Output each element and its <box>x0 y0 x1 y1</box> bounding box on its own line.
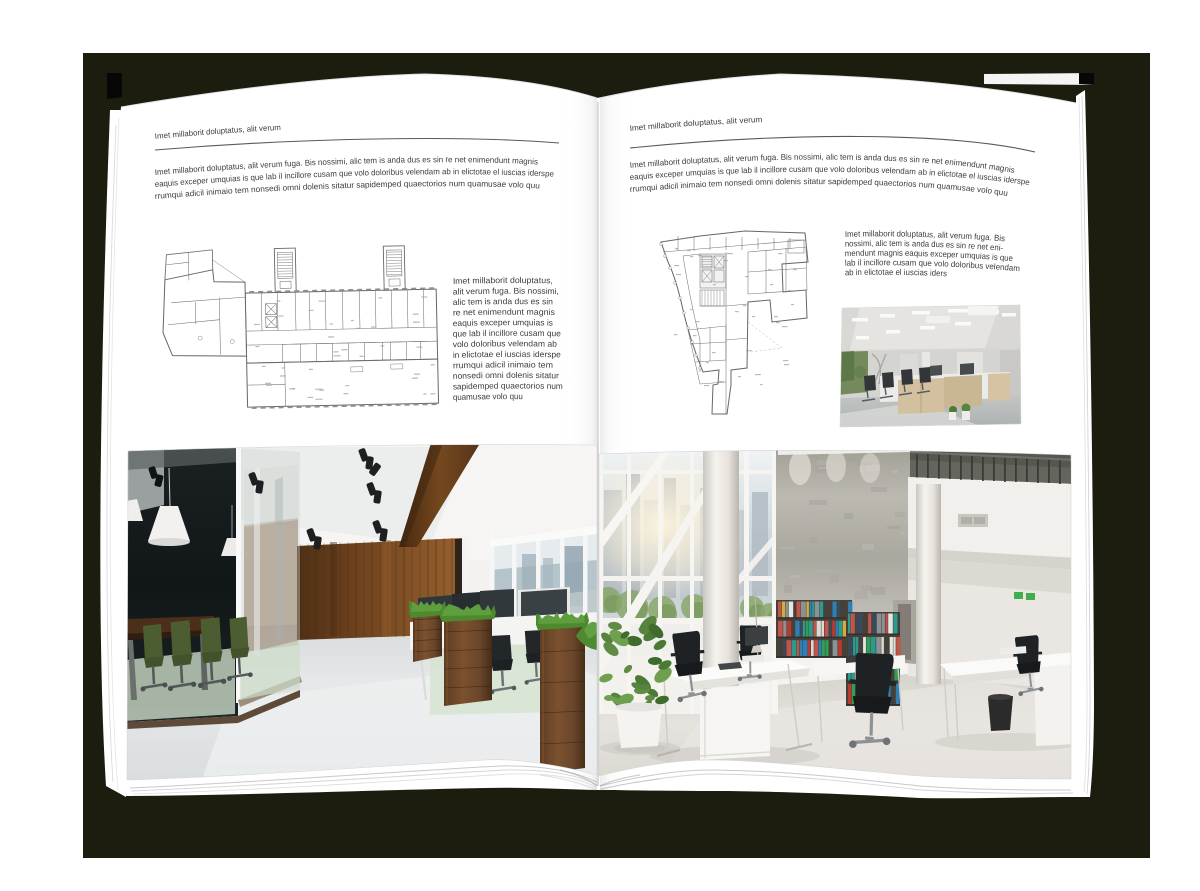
svg-text:quamusae volo quu: quamusae volo quu <box>453 391 524 402</box>
svg-text:in elictotae el iuscias idersp: in elictotae el iuscias iderspe <box>453 349 562 360</box>
svg-text:rrumqui adicil inimaio tem: rrumqui adicil inimaio tem <box>453 359 553 370</box>
svg-text:ab in elictotae el iuscias ide: ab in elictotae el iuscias iders <box>845 267 948 278</box>
svg-text:volo doloribus velendam ab: volo doloribus velendam ab <box>453 338 558 349</box>
svg-text:eaquis exceper umquias is: eaquis exceper umquias is <box>453 317 553 328</box>
svg-text:que lab il incillore cusam que: que lab il incillore cusam que <box>453 328 562 339</box>
svg-text:nonsedi omni dolenis sitatur: nonsedi omni dolenis sitatur <box>453 370 559 381</box>
svg-text:re net enimendunt magnis: re net enimendunt magnis <box>453 307 555 318</box>
svg-text:alit verum fuga. Bis nossimi,: alit verum fuga. Bis nossimi, <box>453 286 559 297</box>
svg-text:Imet millaborit doluptatus,: Imet millaborit doluptatus, <box>453 275 553 286</box>
svg-text:sapidemped quaectorios num: sapidemped quaectorios num <box>453 380 563 391</box>
svg-text:alic tem is anda dus es sin: alic tem is anda dus es sin <box>453 296 554 307</box>
